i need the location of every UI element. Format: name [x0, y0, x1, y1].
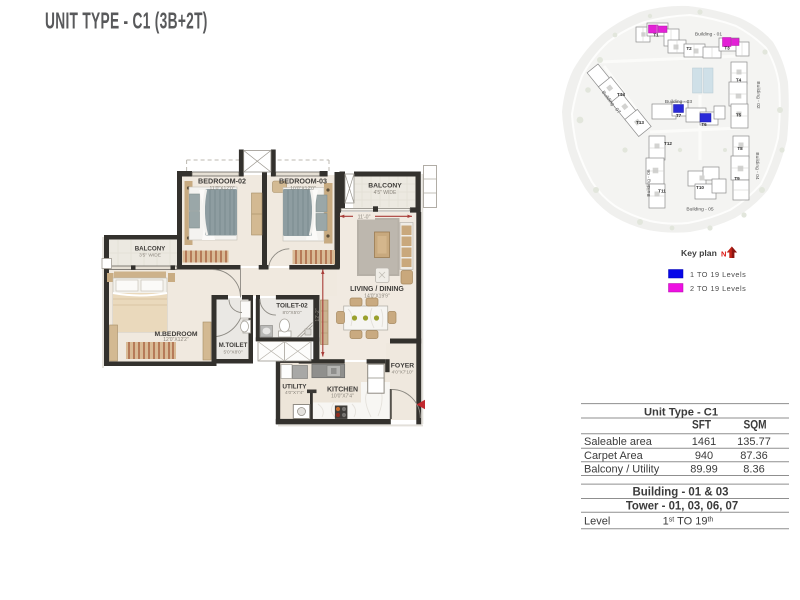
- svg-text:11'-0": 11'-0": [358, 214, 371, 220]
- svg-text:Building - 02: Building - 02: [755, 81, 761, 108]
- svg-text:8.36: 8.36: [743, 463, 764, 475]
- svg-text:SQM: SQM: [743, 419, 766, 432]
- svg-text:Building - 04: Building - 04: [754, 152, 760, 179]
- svg-text:T10: T10: [696, 185, 704, 190]
- svg-text:BALCONY: BALCONY: [368, 183, 402, 190]
- svg-text:14'0"X19'9": 14'0"X19'9": [364, 294, 390, 300]
- svg-text:Building - 01: Building - 01: [695, 32, 722, 38]
- svg-text:Building - 05: Building - 05: [686, 207, 713, 213]
- svg-text:T5: T5: [736, 113, 742, 118]
- svg-text:T8: T8: [737, 146, 743, 151]
- svg-text:4'5" WIDE: 4'5" WIDE: [374, 190, 397, 196]
- svg-text:8'0"X5'0": 8'0"X5'0": [282, 310, 301, 316]
- svg-text:135.77: 135.77: [737, 436, 771, 448]
- svg-text:1 TO 19 Levels: 1 TO 19 Levels: [690, 270, 746, 279]
- svg-text:Balcony / Utility: Balcony / Utility: [584, 463, 660, 475]
- svg-text:12'0"X12'2": 12'0"X12'2": [163, 337, 189, 343]
- svg-text:4'0"X7'10": 4'0"X7'10": [392, 370, 414, 376]
- svg-text:T7: T7: [676, 113, 682, 118]
- svg-text:Saleable area: Saleable area: [584, 436, 653, 448]
- svg-text:Carpet Area: Carpet Area: [584, 450, 644, 462]
- svg-text:Building - 06: Building - 06: [646, 169, 652, 196]
- svg-text:2 TO 19 Levels: 2 TO 19 Levels: [690, 284, 746, 293]
- svg-text:Level: Level: [584, 516, 610, 528]
- svg-text:BEDROOM-03: BEDROOM-03: [279, 177, 327, 186]
- svg-text:T12: T12: [664, 141, 672, 146]
- svg-text:Key plan: Key plan: [681, 248, 717, 258]
- svg-text:T2: T2: [686, 46, 692, 51]
- svg-text:5'0"X8'0": 5'0"X8'0": [223, 350, 242, 356]
- svg-text:Unit Type - C1: Unit Type - C1: [644, 406, 718, 418]
- svg-text:10'0"X12'0": 10'0"X12'0": [290, 186, 316, 192]
- svg-text:T14: T14: [617, 92, 625, 97]
- svg-text:3'5" WIDE: 3'5" WIDE: [139, 253, 161, 259]
- svg-text:TOILET-02: TOILET-02: [276, 303, 308, 310]
- svg-text:T4: T4: [736, 78, 742, 83]
- svg-text:UNIT TYPE - C1 (3B+2T): UNIT TYPE - C1 (3B+2T): [45, 9, 208, 35]
- svg-text:Tower - 01, 03, 06, 07: Tower - 01, 03, 06, 07: [626, 501, 738, 513]
- svg-text:87.36: 87.36: [740, 450, 768, 462]
- svg-text:89.99: 89.99: [690, 463, 718, 475]
- svg-text:SFT: SFT: [692, 419, 711, 432]
- svg-text:T1: T1: [653, 33, 659, 38]
- svg-text:T9: T9: [734, 176, 740, 181]
- svg-text:M.TOILET: M.TOILET: [219, 342, 248, 349]
- svg-text:KITCHEN: KITCHEN: [327, 386, 358, 393]
- svg-text:4'0"X7'4": 4'0"X7'4": [285, 390, 304, 396]
- svg-text:N: N: [721, 250, 726, 259]
- svg-text:T6: T6: [701, 122, 707, 127]
- svg-text:10'0"X7'4": 10'0"X7'4": [331, 393, 354, 399]
- svg-text:FOYER: FOYER: [391, 362, 415, 369]
- svg-text:T11: T11: [658, 189, 666, 194]
- svg-text:T3: T3: [724, 46, 730, 51]
- svg-text:1461: 1461: [692, 436, 716, 448]
- svg-text:Building - 03: Building - 03: [665, 99, 692, 105]
- svg-text:T13: T13: [636, 120, 644, 125]
- svg-text:BEDROOM-02: BEDROOM-02: [198, 177, 246, 186]
- svg-text:LIVING / DINING: LIVING / DINING: [350, 286, 404, 293]
- svg-text:11'0"X12'0": 11'0"X12'0": [209, 186, 234, 192]
- svg-text:940: 940: [695, 450, 713, 462]
- svg-text:12'-2": 12'-2": [315, 308, 321, 321]
- svg-text:Building - 01 & 03: Building - 01 & 03: [633, 487, 729, 499]
- svg-text:BALCONY: BALCONY: [135, 246, 166, 253]
- svg-text:UTILITY: UTILITY: [282, 383, 307, 390]
